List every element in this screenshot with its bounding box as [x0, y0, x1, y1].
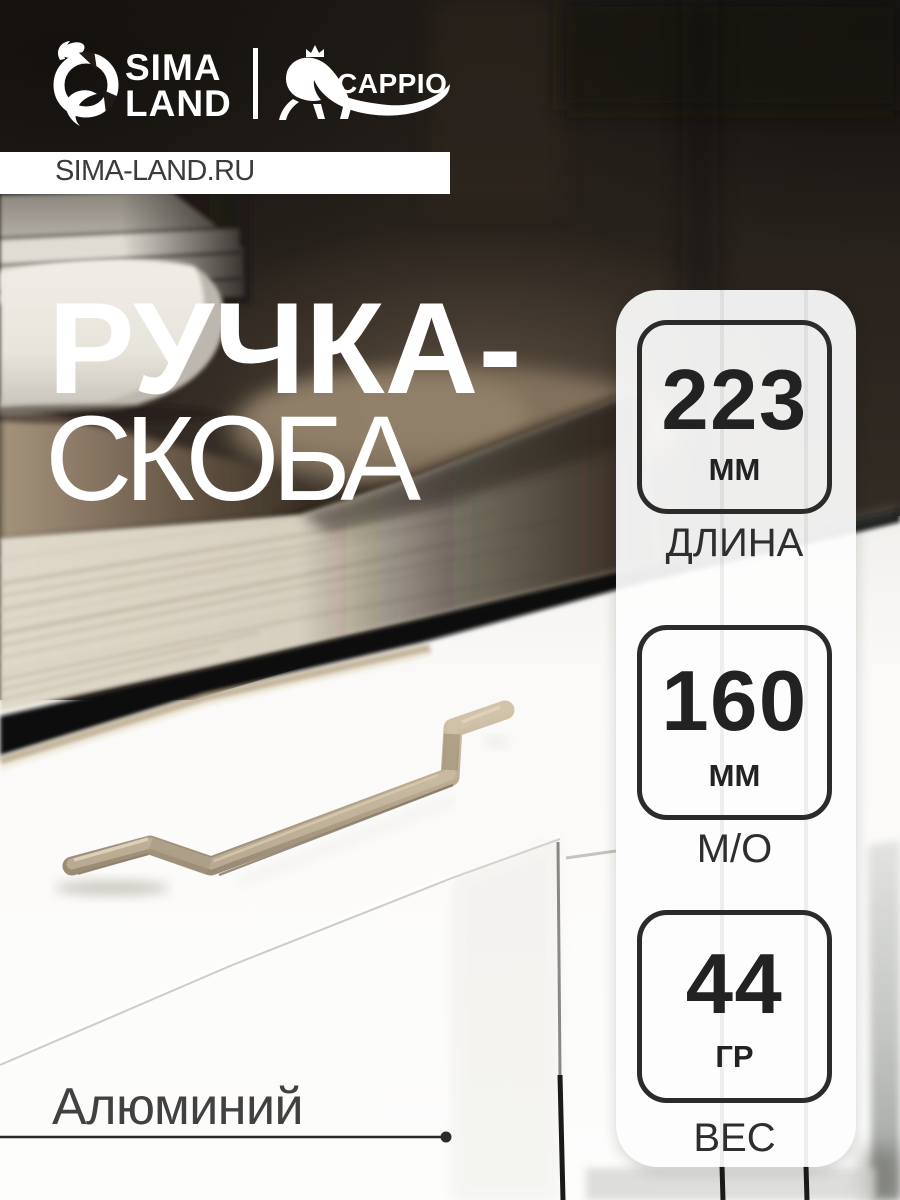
- svg-text:LAND: LAND: [125, 83, 232, 124]
- svg-text:CAPPIO: CAPPIO: [337, 68, 447, 99]
- svg-text:SIMA: SIMA: [125, 47, 222, 88]
